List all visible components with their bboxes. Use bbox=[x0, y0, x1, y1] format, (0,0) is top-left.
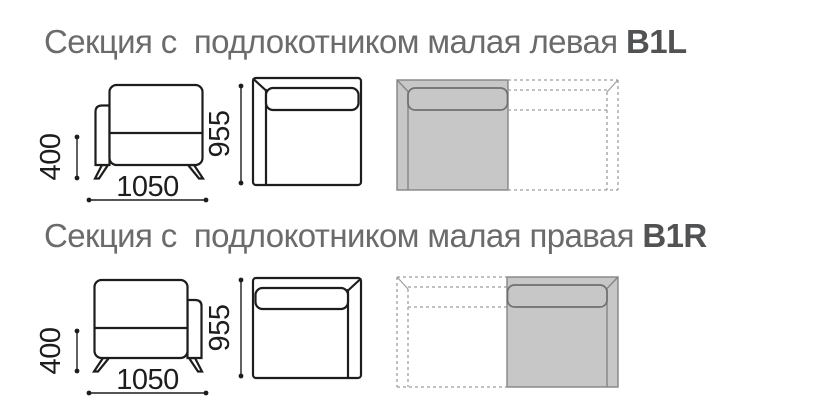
b1r-width-dimension: 1050 bbox=[87, 364, 209, 396]
b1l-height-dim-dot-bottom bbox=[75, 176, 80, 181]
b1r-depth-dim-dot-bottom bbox=[239, 374, 244, 379]
b1l-width-dimension: 1050 bbox=[87, 171, 209, 203]
b1r-plan-adjacent-module-dashed bbox=[397, 277, 507, 387]
b1r-left-leg bbox=[94, 358, 109, 372]
catalog-page: Секция с подлокотником малая левая B1L С… bbox=[0, 0, 840, 420]
b1l-width-label: 1050 bbox=[116, 171, 179, 203]
b1l-layout-plan bbox=[397, 80, 618, 190]
b1r-width-dim-dot-left bbox=[87, 391, 92, 396]
b1r-dashed-corner-diagonal bbox=[398, 278, 409, 290]
b1l-top-view-backrest bbox=[266, 88, 359, 110]
b1l-depth-dim-dot-bottom bbox=[239, 181, 244, 186]
b1r-depth-dimension: 955 bbox=[204, 278, 243, 379]
b1r-top-view-backrest bbox=[256, 288, 349, 309]
b1r-depth-label: 955 bbox=[204, 305, 236, 352]
b1l-depth-label: 955 bbox=[204, 111, 236, 158]
b1l-plan-backrest bbox=[408, 88, 508, 110]
b1r-armrest bbox=[188, 300, 202, 358]
b1r-body bbox=[95, 280, 188, 358]
b1l-front-view bbox=[95, 85, 203, 179]
b1r-width-dim-dot-right bbox=[204, 391, 209, 396]
b1l-left-leg bbox=[95, 165, 108, 179]
technical-drawings: 400 1050 955 bbox=[0, 0, 840, 420]
b1l-body bbox=[110, 85, 203, 165]
b1l-top-view bbox=[253, 78, 361, 185]
b1r-height-dim-dot-bottom bbox=[75, 369, 80, 374]
b1r-front-view bbox=[94, 280, 202, 372]
b1l-height-dimension: 400 bbox=[35, 134, 79, 181]
b1r-right-leg bbox=[189, 358, 202, 372]
b1l-height-label: 400 bbox=[35, 134, 67, 181]
b1r-layout-plan bbox=[397, 277, 618, 387]
b1l-right-leg bbox=[188, 165, 203, 179]
b1r-plan-backrest bbox=[508, 285, 608, 307]
b1l-dashed-corner-diagonal bbox=[607, 81, 618, 93]
b1l-plan-adjacent-module-dashed bbox=[508, 80, 618, 190]
b1r-height-dimension: 400 bbox=[35, 328, 79, 375]
b1r-width-label: 1050 bbox=[116, 364, 179, 396]
b1r-depth-dim-dot-top bbox=[239, 278, 244, 283]
b1l-height-dim-dot-top bbox=[75, 135, 80, 140]
b1r-height-label: 400 bbox=[35, 328, 67, 375]
b1l-width-dim-dot-left bbox=[87, 198, 92, 203]
b1r-height-dim-dot-top bbox=[75, 329, 80, 334]
b1l-width-dim-dot-right bbox=[204, 198, 209, 203]
b1l-armrest bbox=[96, 106, 110, 166]
b1l-depth-dim-dot-top bbox=[239, 84, 244, 89]
b1r-top-view bbox=[253, 278, 361, 378]
b1l-depth-dimension: 955 bbox=[204, 84, 243, 186]
